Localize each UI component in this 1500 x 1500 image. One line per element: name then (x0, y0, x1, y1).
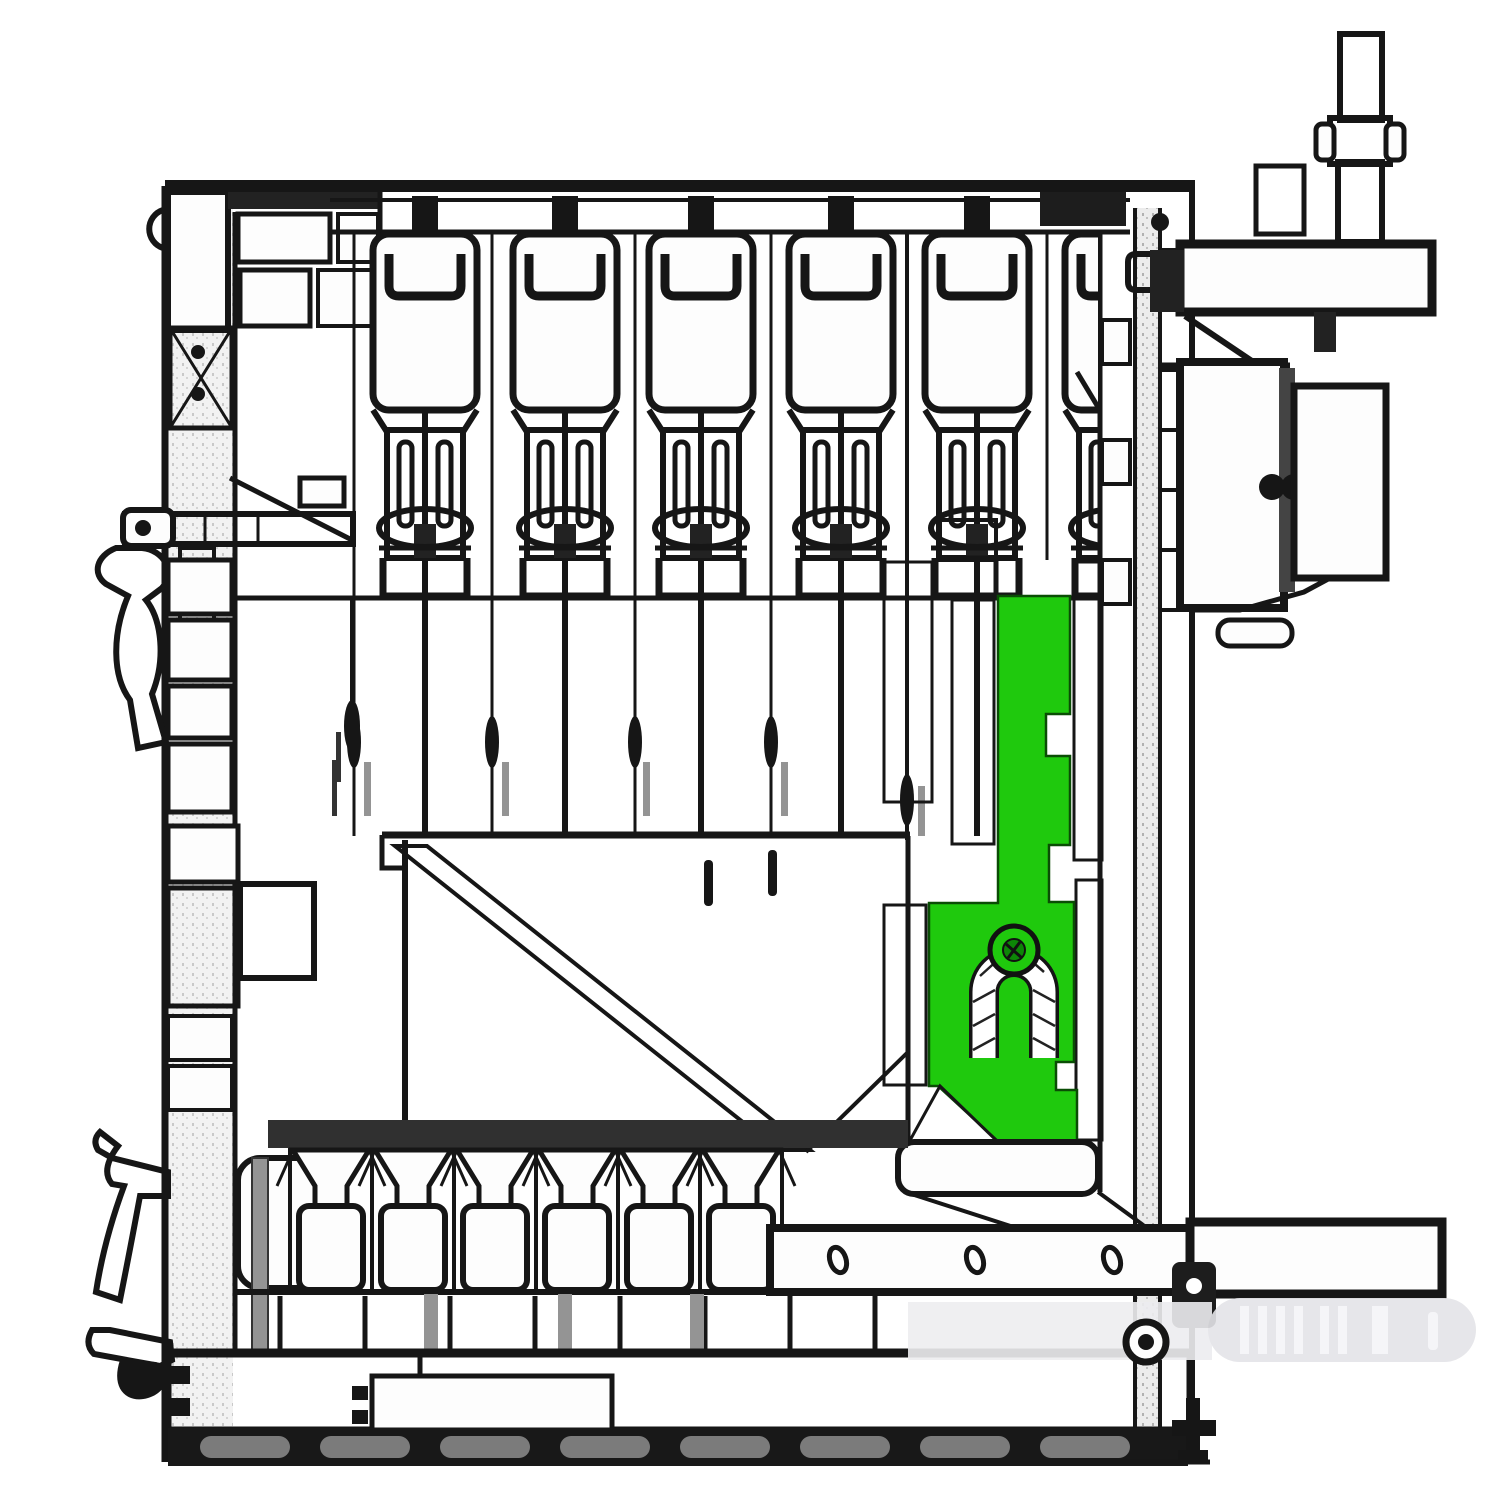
channel-tab (168, 1398, 190, 1416)
wall-pocket (1102, 440, 1130, 484)
top-frame-beam (165, 180, 1195, 192)
gray-rod (558, 1294, 572, 1350)
valve-head (628, 716, 642, 768)
wall-block (168, 560, 232, 614)
deck-band (268, 1120, 908, 1148)
side-tab (1218, 620, 1292, 646)
gray-piston-rod (252, 1158, 268, 1350)
corner-sub-block-d (318, 270, 378, 326)
sectional-drawing (0, 0, 1500, 1500)
drawing-canvas (0, 0, 1500, 1500)
guide-dash (364, 762, 371, 816)
insert-tab (352, 1410, 368, 1424)
insert-tab (352, 1386, 368, 1400)
corner-sub-block-a (238, 214, 330, 262)
rivet-b (191, 387, 205, 401)
valve-head (900, 774, 914, 826)
wall-block (168, 1066, 232, 1110)
wall-pocket (1102, 320, 1130, 364)
pivot-ring-center (1138, 1334, 1154, 1350)
ghost-faded-part (908, 1298, 1476, 1362)
slide-bar (1190, 1222, 1442, 1294)
channel-tab (168, 1366, 190, 1384)
assembly-base (898, 1142, 1098, 1194)
wall-block (168, 826, 238, 882)
channel-insert (372, 1376, 612, 1430)
rivet-a (191, 345, 205, 359)
rod-end-pin (135, 520, 151, 536)
bracket-joint (1150, 250, 1184, 312)
guide-dash (502, 762, 509, 816)
bracket-stud (1314, 312, 1336, 352)
guide-dash (643, 762, 650, 816)
collar-lug-left (1316, 124, 1334, 160)
guide-dash (781, 762, 788, 816)
corner-sub-block-c (240, 270, 310, 326)
pivot-pin (1151, 213, 1169, 231)
guide-dash (918, 786, 925, 836)
bracket-arm (1180, 244, 1432, 312)
stem-bulge (344, 700, 360, 752)
wall-block (168, 1016, 232, 1060)
wall-block (168, 620, 232, 680)
gray-rod (690, 1294, 704, 1350)
outer-box (1294, 386, 1386, 578)
pivot-hole (1186, 1278, 1202, 1294)
link-block (300, 478, 344, 506)
wall-block (168, 744, 232, 812)
corner-block (168, 192, 228, 330)
dowel-mark (768, 850, 777, 896)
valve-head (485, 716, 499, 768)
wall-block (168, 686, 232, 738)
wall-pocket (1102, 560, 1130, 604)
valve-head (764, 716, 778, 768)
collar-lug-right (1386, 124, 1404, 160)
beam-dark-block (1040, 192, 1126, 226)
gray-rod (424, 1294, 438, 1350)
stem-dash (336, 732, 341, 782)
dowel-mark (704, 860, 713, 906)
